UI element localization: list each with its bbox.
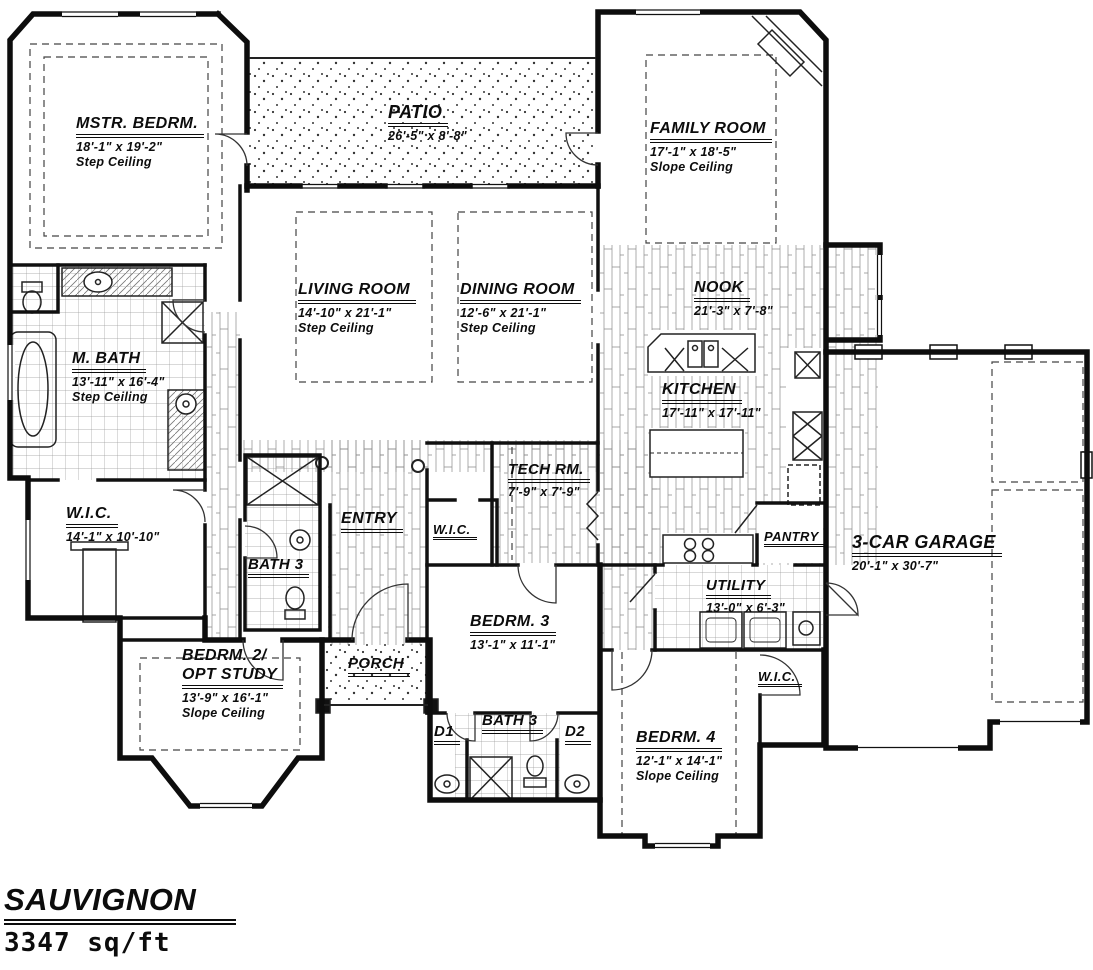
room-name: BEDRM. 4 bbox=[636, 729, 722, 752]
room-label-tech-rm: TECH RM. 7'-9" x 7'-9" bbox=[508, 461, 590, 499]
window-icon bbox=[875, 300, 884, 335]
room-note: Step Ceiling bbox=[460, 321, 581, 336]
room-label-wic-master: W.I.C. 14'-1" x 10'-10" bbox=[66, 505, 159, 545]
room-label-wic-bed4: W.I.C. bbox=[758, 668, 802, 687]
room-note: Slope Ceiling bbox=[650, 160, 772, 175]
room-name: BEDRM. 3 bbox=[470, 613, 556, 636]
door-arc-icon bbox=[612, 650, 652, 690]
room-name: BATH 3 bbox=[482, 712, 543, 734]
room-name: ENTRY bbox=[341, 510, 403, 533]
room-name: BEDRM. 2/ bbox=[182, 647, 283, 666]
window-icon bbox=[6, 345, 15, 400]
room-name: W.I.C. bbox=[66, 505, 118, 528]
garage-door-icon bbox=[858, 743, 958, 752]
room-dims: 13'-1" x 11'-1" bbox=[470, 638, 556, 653]
room-label-d1: D1 bbox=[434, 723, 460, 745]
hall-wood-floor bbox=[207, 312, 240, 640]
entry-wood-floor bbox=[328, 440, 427, 645]
window-icon bbox=[300, 185, 510, 189]
window-icon bbox=[875, 255, 884, 295]
room-label-wic-hall: W.I.C. bbox=[433, 521, 477, 540]
room-dims: 13'-9" x 16'-1" bbox=[182, 691, 283, 706]
sink-icon bbox=[290, 530, 310, 550]
room-label-nook: NOOK 21'-3" x 7'-8" bbox=[694, 279, 773, 319]
sink-icon bbox=[565, 775, 589, 793]
room-label-porch: PORCH bbox=[348, 655, 410, 677]
room-name: LIVING ROOM bbox=[298, 281, 416, 304]
room-label-bedrm3: BEDRM. 3 13'-1" x 11'-1" bbox=[470, 613, 556, 653]
room-dims: 17'-11" x 17'-11" bbox=[662, 406, 761, 421]
room-name: M. BATH bbox=[72, 350, 146, 373]
column-icon bbox=[412, 460, 424, 472]
room-name: D2 bbox=[565, 723, 591, 745]
room-name: NOOK bbox=[694, 279, 750, 302]
sink-icon bbox=[84, 272, 112, 292]
room-dims: 21'-3" x 7'-8" bbox=[694, 304, 773, 319]
garage-pilasters bbox=[855, 345, 1092, 478]
room-label-garage: 3-CAR GARAGE 20'-1" x 30'-7" bbox=[852, 532, 1002, 574]
room-label-bath3-jj: BATH 3 bbox=[482, 712, 543, 734]
window-icon bbox=[636, 8, 700, 17]
room-note: Slope Ceiling bbox=[636, 769, 722, 784]
window-icon bbox=[200, 801, 252, 810]
room-dims: 26'-5" x 8'-8" bbox=[388, 129, 467, 144]
room-note: Step Ceiling bbox=[298, 321, 416, 336]
room-label-family-room: FAMILY ROOM 17'-1" x 18'-5" Slope Ceilin… bbox=[650, 120, 772, 174]
title-block: SAUVIGNON 3347 sq/ft bbox=[4, 882, 236, 958]
room-name: KITCHEN bbox=[662, 381, 742, 404]
room-dims: 20'-1" x 30'-7" bbox=[852, 559, 1002, 574]
plan-area: 3347 sq/ft bbox=[4, 928, 236, 958]
closet-island bbox=[83, 549, 116, 622]
room-name: W.I.C. bbox=[758, 669, 802, 687]
room-name: PATIO bbox=[388, 102, 448, 127]
room-label-bedrm4: BEDRM. 4 12'-1" x 14'-1" Slope Ceiling bbox=[636, 729, 722, 783]
room-dims: 17'-1" x 18'-5" bbox=[650, 145, 772, 160]
room-label-entry: ENTRY bbox=[341, 510, 403, 533]
room-label-d2: D2 bbox=[565, 723, 591, 745]
room-note: Step Ceiling bbox=[76, 155, 204, 170]
room-name: BATH 3 bbox=[248, 556, 309, 578]
room-label-mstr-bedrm: MSTR. BEDRM. 18'-1" x 19'-2" Step Ceilin… bbox=[76, 115, 204, 169]
door-arc-icon bbox=[518, 565, 556, 603]
room-dims: 13'-11" x 16'-4" bbox=[72, 375, 165, 390]
room-name: PANTRY bbox=[764, 529, 825, 547]
room-name: TECH RM. bbox=[508, 461, 590, 483]
room-dims: 18'-1" x 19'-2" bbox=[76, 140, 204, 155]
door-arc-icon bbox=[215, 134, 247, 166]
room-name: PORCH bbox=[348, 655, 410, 677]
room-dims: 7'-9" x 7'-9" bbox=[508, 485, 590, 500]
room-label-utility: UTILITY 13'-0" x 6'-3" bbox=[706, 577, 785, 615]
vanity-counter bbox=[62, 268, 172, 296]
floor-plan-sheet: MSTR. BEDRM. 18'-1" x 19'-2" Step Ceilin… bbox=[0, 0, 1093, 970]
room-name: 3-CAR GARAGE bbox=[852, 532, 1002, 557]
window-icon bbox=[140, 10, 196, 19]
room-name: DINING ROOM bbox=[460, 281, 581, 304]
room-name-2: OPT STUDY bbox=[182, 666, 283, 689]
window-icon bbox=[62, 10, 118, 19]
room-dims: 13'-0" x 6'-3" bbox=[706, 601, 785, 616]
room-dims: 14'-10" x 21'-1" bbox=[298, 306, 416, 321]
bed-hall-wood-floor bbox=[600, 440, 657, 650]
room-label-kitchen: KITCHEN 17'-11" x 17'-11" bbox=[662, 381, 761, 421]
column-icon bbox=[316, 457, 328, 469]
room-label-dining-room: DINING ROOM 12'-6" x 21'-1" Step Ceiling bbox=[460, 281, 581, 335]
room-dims: 14'-1" x 10'-10" bbox=[66, 530, 159, 545]
room-name: D1 bbox=[434, 723, 460, 745]
room-name: W.I.C. bbox=[433, 522, 477, 540]
room-note: Step Ceiling bbox=[72, 390, 165, 405]
room-label-pantry: PANTRY bbox=[764, 528, 825, 547]
room-dims: 12'-1" x 14'-1" bbox=[636, 754, 722, 769]
room-name: UTILITY bbox=[706, 577, 771, 599]
room-label-living-room: LIVING ROOM 14'-10" x 21'-1" Step Ceilin… bbox=[298, 281, 416, 335]
room-name: FAMILY ROOM bbox=[650, 120, 772, 143]
room-note: Slope Ceiling bbox=[182, 706, 283, 721]
room-label-bath3-hall: BATH 3 bbox=[248, 556, 309, 578]
plan-name: SAUVIGNON bbox=[4, 882, 236, 925]
room-label-m-bath: M. BATH 13'-11" x 16'-4" Step Ceiling bbox=[72, 350, 165, 404]
room-label-bedrm2: BEDRM. 2/ OPT STUDY 13'-9" x 16'-1" Slop… bbox=[182, 647, 283, 720]
room-dims: 12'-6" x 21'-1" bbox=[460, 306, 581, 321]
garage-door-icon bbox=[1000, 717, 1080, 726]
window-icon bbox=[24, 520, 33, 580]
room-name: MSTR. BEDRM. bbox=[76, 115, 204, 138]
door-arc-icon bbox=[173, 490, 205, 522]
room-label-patio: PATIO 26'-5" x 8'-8" bbox=[388, 102, 467, 144]
door-arc-icon bbox=[826, 583, 858, 615]
window-icon bbox=[655, 841, 710, 850]
